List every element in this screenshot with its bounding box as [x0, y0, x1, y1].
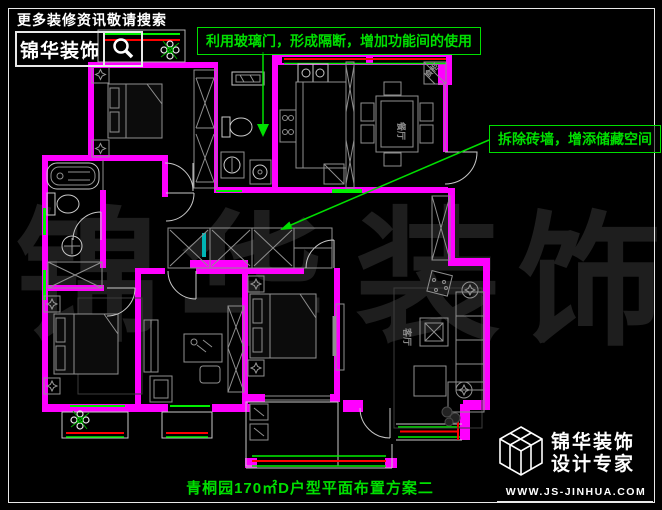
- svg-text:餐厅: 餐厅: [396, 121, 407, 140]
- footer-brand-block: 锦华装饰 设计专家 WWW.JS-JINHUA.COM: [497, 424, 655, 502]
- footer-url: WWW.JS-JINHUA.COM: [497, 486, 655, 498]
- search-hint-text: 更多装修资讯敬请搜索: [17, 10, 167, 30]
- room-bedroom1: [92, 66, 216, 188]
- footer-brand-tagline: 设计专家: [551, 454, 635, 476]
- floorplan-page: 锦 华 装 饰: [0, 0, 662, 510]
- flower-icon: [71, 411, 89, 429]
- footer-divider: [497, 501, 653, 502]
- brand-logo-text: 锦华装饰: [17, 33, 105, 65]
- wireframe-cube-logo-icon: [497, 424, 545, 483]
- svg-text:饰: 饰: [518, 197, 662, 367]
- room-bedroom3: [248, 276, 344, 440]
- brand-search-box: 锦华装饰: [15, 31, 143, 67]
- room-dining: [361, 62, 477, 184]
- annotation-storage: 拆除砖墙，增添储藏空间: [489, 125, 661, 153]
- flower-icon: [161, 41, 179, 59]
- svg-text:客厅: 客厅: [402, 327, 413, 346]
- magnifier-icon: [105, 33, 141, 65]
- room-kitchen: [280, 62, 354, 188]
- annotation-glass-door: 利用玻璃门，形成隔断，增加功能间的使用: [197, 27, 481, 55]
- footer-brand-name: 锦华装饰: [551, 432, 635, 454]
- plan-title: 青桐园170㎡D户型平面布置方案二: [150, 477, 470, 498]
